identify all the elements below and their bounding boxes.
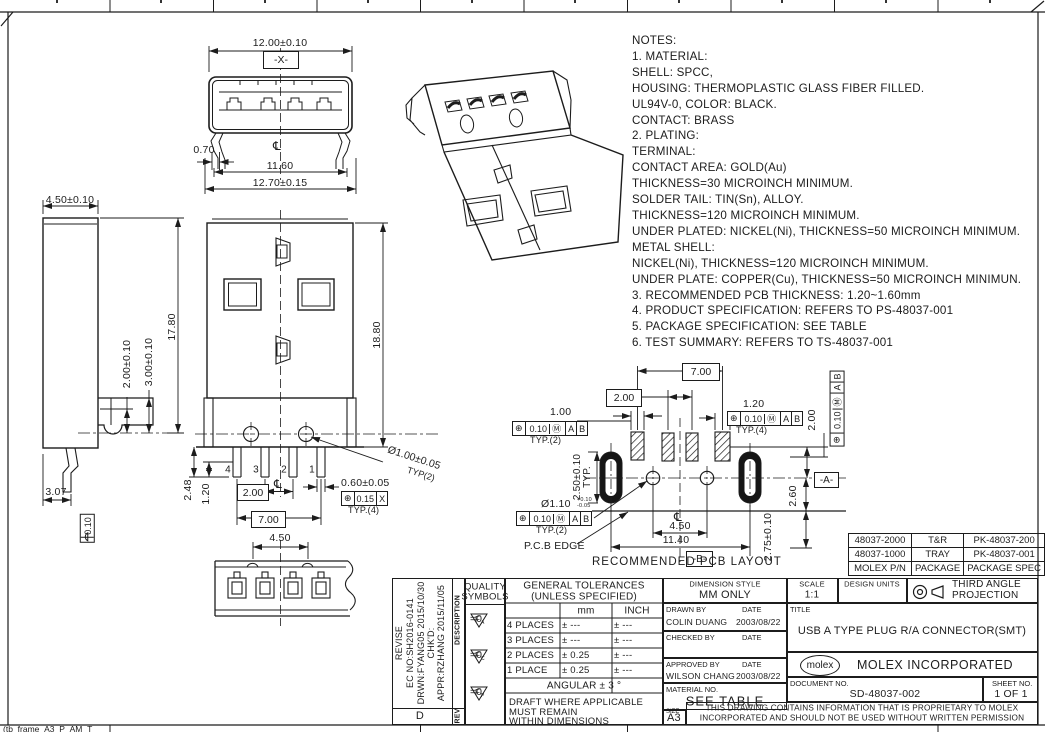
proprietary-text: INCORPORATED AND SHOULD NOT BE USED WITH… xyxy=(700,714,1024,723)
sheet-number: 1 OF 1 xyxy=(994,688,1027,700)
typ-label: TYP.(2) xyxy=(530,435,561,445)
dim-side-depth: 4.50±0.10 xyxy=(46,194,94,206)
tol-row-mm: ± --- xyxy=(562,620,580,631)
bottom-view xyxy=(215,561,355,616)
datum-a: -A- xyxy=(814,472,839,488)
main-view xyxy=(196,219,364,477)
pcb-dim-450: 4.50 xyxy=(669,520,690,532)
checked-label: CHECKED BY xyxy=(666,633,715,642)
revision-line: DRWN:FYANG05 2015/10/30 xyxy=(416,582,426,705)
quality-symbol-fc: FC =0 xyxy=(470,649,482,661)
revision-line: APPR:RZHANG 2015/11/05 xyxy=(436,585,446,701)
frame-template-label: (tb_frame_A3_P_AM_T xyxy=(3,724,92,732)
drawn-label: DRAWN BY xyxy=(666,605,706,614)
table-row: MOLEX P/NPACKAGEPACKAGE SPEC xyxy=(849,562,1045,576)
document-label: DOCUMENT NO. xyxy=(790,679,849,688)
centerline-symbol: ℄ xyxy=(274,477,282,491)
dim-side-d1: 2.00±0.10 xyxy=(121,340,133,388)
dim-main-d1: 2.48 xyxy=(182,479,194,500)
approved-date: 2003/08/22 xyxy=(736,671,781,681)
flatness-icon xyxy=(81,537,94,542)
flatness-frame: 0.10 xyxy=(80,514,95,543)
tol-row-inch: ± --- xyxy=(614,620,632,631)
tolerance-header: (UNLESS SPECIFIED) xyxy=(531,592,637,603)
rev-label: REV xyxy=(455,709,462,724)
quality-header: SYMBOLS xyxy=(461,592,508,603)
position-frame-holes: ⊕0.10ⓂAB xyxy=(516,511,592,526)
svg-text:F: F xyxy=(475,651,480,660)
position-frame-pads4: ⊕0.10ⓂAB xyxy=(727,411,803,426)
revision-line: EC NO:SH2016-0141 xyxy=(405,598,415,688)
pin-number-3: 3 xyxy=(253,465,259,476)
tol-row-mm: ± 0.25 xyxy=(562,650,590,661)
dim-main-height: 18.80 xyxy=(371,321,383,348)
dim-side-d2: 3.00±0.10 xyxy=(143,338,155,386)
typ-label: TYP.(4) xyxy=(736,425,767,435)
triangle-icon: FC xyxy=(470,649,489,664)
tol-draft: WITHIN DIMENSIONS xyxy=(509,716,609,727)
pin-number-2: 2 xyxy=(281,465,287,476)
dim-style-value: MM ONLY xyxy=(699,589,751,601)
pcb-hole-dia: Ø1.10 xyxy=(541,498,571,510)
drawn-date: 2003/08/22 xyxy=(736,617,781,627)
pcb-dim-pitch: 2.00 xyxy=(606,389,642,407)
approved-label: APPROVED BY xyxy=(666,660,720,669)
dim-main-pitch: 2.00 xyxy=(237,484,269,501)
dim-main-d2: 1.20 xyxy=(200,483,212,504)
tol-row-inch: ± --- xyxy=(614,665,632,676)
svg-text:F: F xyxy=(475,615,480,624)
datum-x: -X- xyxy=(263,51,299,69)
size-value: A3 xyxy=(667,712,681,724)
pcb-caption: RECOMMENDED PCB LAYOUT xyxy=(592,556,782,568)
svg-text:P: P xyxy=(481,693,485,699)
col-mm: mm xyxy=(577,606,594,617)
revision-line: CHK'D: xyxy=(426,628,436,659)
pin-number-4: 4 xyxy=(225,465,231,476)
dim-front-inner: 11.60 xyxy=(267,160,294,172)
typ-label: TYP.(2) xyxy=(536,525,567,535)
quality-symbol-fp: FP =0 xyxy=(470,686,482,698)
drawing-title: USB A TYPE PLUG R/A CONNECTOR(SMT) xyxy=(798,625,1026,637)
pcb-dim-1140: 11.40 xyxy=(663,534,690,546)
tol-row-label: 4 PLACES xyxy=(507,620,554,631)
pcb-edge-label: P.C.B EDGE xyxy=(524,540,585,552)
projection-label: PROJECTION xyxy=(952,590,1018,601)
svg-text:F: F xyxy=(475,688,480,697)
position-frame-right: ⊕0.10ⓂAB xyxy=(830,370,845,446)
position-frame-pads2: ⊕0.10ⓂAB xyxy=(512,421,588,436)
scale-label: SCALE xyxy=(799,580,825,589)
side-view xyxy=(43,218,153,492)
dim-front-outer: 12.70±0.15 xyxy=(253,177,307,189)
dim-side-d3: 3.07 xyxy=(45,486,66,498)
position-frame-pins: ⊕0.15X xyxy=(341,491,388,506)
tol-row-inch: ± --- xyxy=(614,635,632,646)
date-label: DATE xyxy=(742,633,761,642)
date-label: DATE xyxy=(742,660,761,669)
pcb-dim-pad4: 1.20 xyxy=(743,398,764,410)
dim-main-span: 7.00 xyxy=(251,511,286,528)
pcb-layout xyxy=(592,432,846,511)
tol-row-label: 2 PLACES xyxy=(507,650,554,661)
dim-bottom-d1: 4.50 xyxy=(269,532,290,544)
approved-value: WILSON CHANG xyxy=(666,671,735,681)
rev-value: D xyxy=(416,710,424,722)
sheet-label: SHEET NO. xyxy=(992,679,1032,688)
engineering-drawing-sheet: { "frame": { "bottom_label": "(tb_frame_… xyxy=(0,0,1045,732)
table-row: 48037-2000T&RPK-48037-200 xyxy=(849,534,1045,548)
scale-value: 1:1 xyxy=(805,590,820,601)
tol-row-label: 1 PLACE xyxy=(507,665,547,676)
typ-label: TYP.(4) xyxy=(348,505,379,515)
projection-label: THIRD ANGLE xyxy=(952,579,1021,590)
drawn-value: COLIN DUANG xyxy=(666,617,727,627)
svg-text:A: A xyxy=(481,620,485,626)
tol-row-label: 3 PLACES xyxy=(507,635,554,646)
units-label: DESIGN UNITS xyxy=(844,580,900,589)
molex-logo: molex xyxy=(800,655,840,676)
dim-side-height: 17.80 xyxy=(166,313,178,340)
dim-front-lead: 0.70 xyxy=(193,144,214,156)
quality-symbol-fa: FA =0 xyxy=(470,613,482,625)
pin-number-1: 1 xyxy=(309,465,315,476)
dim-front-width: 12.00±0.10 xyxy=(253,37,307,49)
dim-style-label: DIMENSION STYLE xyxy=(689,580,760,589)
isometric-view xyxy=(406,71,623,260)
triangle-icon: FA xyxy=(470,613,489,628)
pcb-dim-pad1: 1.00 xyxy=(550,406,571,418)
tol-row-mm: ± --- xyxy=(562,635,580,646)
table-row: 48037-1000TRAYPK-48037-001 xyxy=(849,548,1045,562)
pcb-dim-span: 7.00 xyxy=(682,363,720,381)
proprietary-text: THIS DRAWING CONTAINS INFORMATION THAT I… xyxy=(706,704,1019,713)
tol-row-mm: ± 0.25 xyxy=(562,665,590,676)
title-label: TITLE xyxy=(790,605,810,614)
company-name: MOLEX INCORPORATED xyxy=(857,658,1013,672)
third-angle-icon xyxy=(912,582,946,602)
notes-block: NOTES:1. MATERIAL:SHELL: SPCC, HOUSING: … xyxy=(632,33,1021,351)
pcb-dim-slot: 2.50±0.10TYP. xyxy=(573,454,593,500)
pcb-dim-260: 2.60 xyxy=(787,485,799,506)
package-table: 48037-2000T&RPK-48037-200 48037-1000TRAY… xyxy=(848,533,1045,576)
date-label: DATE xyxy=(742,605,761,614)
centerline-symbol: ℄ xyxy=(273,139,281,153)
pcb-hole-tol: +0.10-0.05 xyxy=(577,497,592,509)
tolerance-header: GENERAL TOLERANCES xyxy=(523,581,644,592)
tol-angular: ANGULAR ± 3 ° xyxy=(547,681,621,692)
document-number: SD-48037-002 xyxy=(850,688,921,700)
pcb-dim-275: 2.75±0.10 xyxy=(762,513,774,561)
triangle-icon: FP xyxy=(470,686,489,701)
dim-pin-width: 0.60±0.05 xyxy=(341,477,389,489)
col-inch: INCH xyxy=(624,606,649,617)
pcb-dim-right: 2.00 xyxy=(806,409,818,430)
svg-text:C: C xyxy=(481,656,485,662)
revision-line: REVISE xyxy=(394,626,404,660)
tol-row-inch: ± --- xyxy=(614,650,632,661)
